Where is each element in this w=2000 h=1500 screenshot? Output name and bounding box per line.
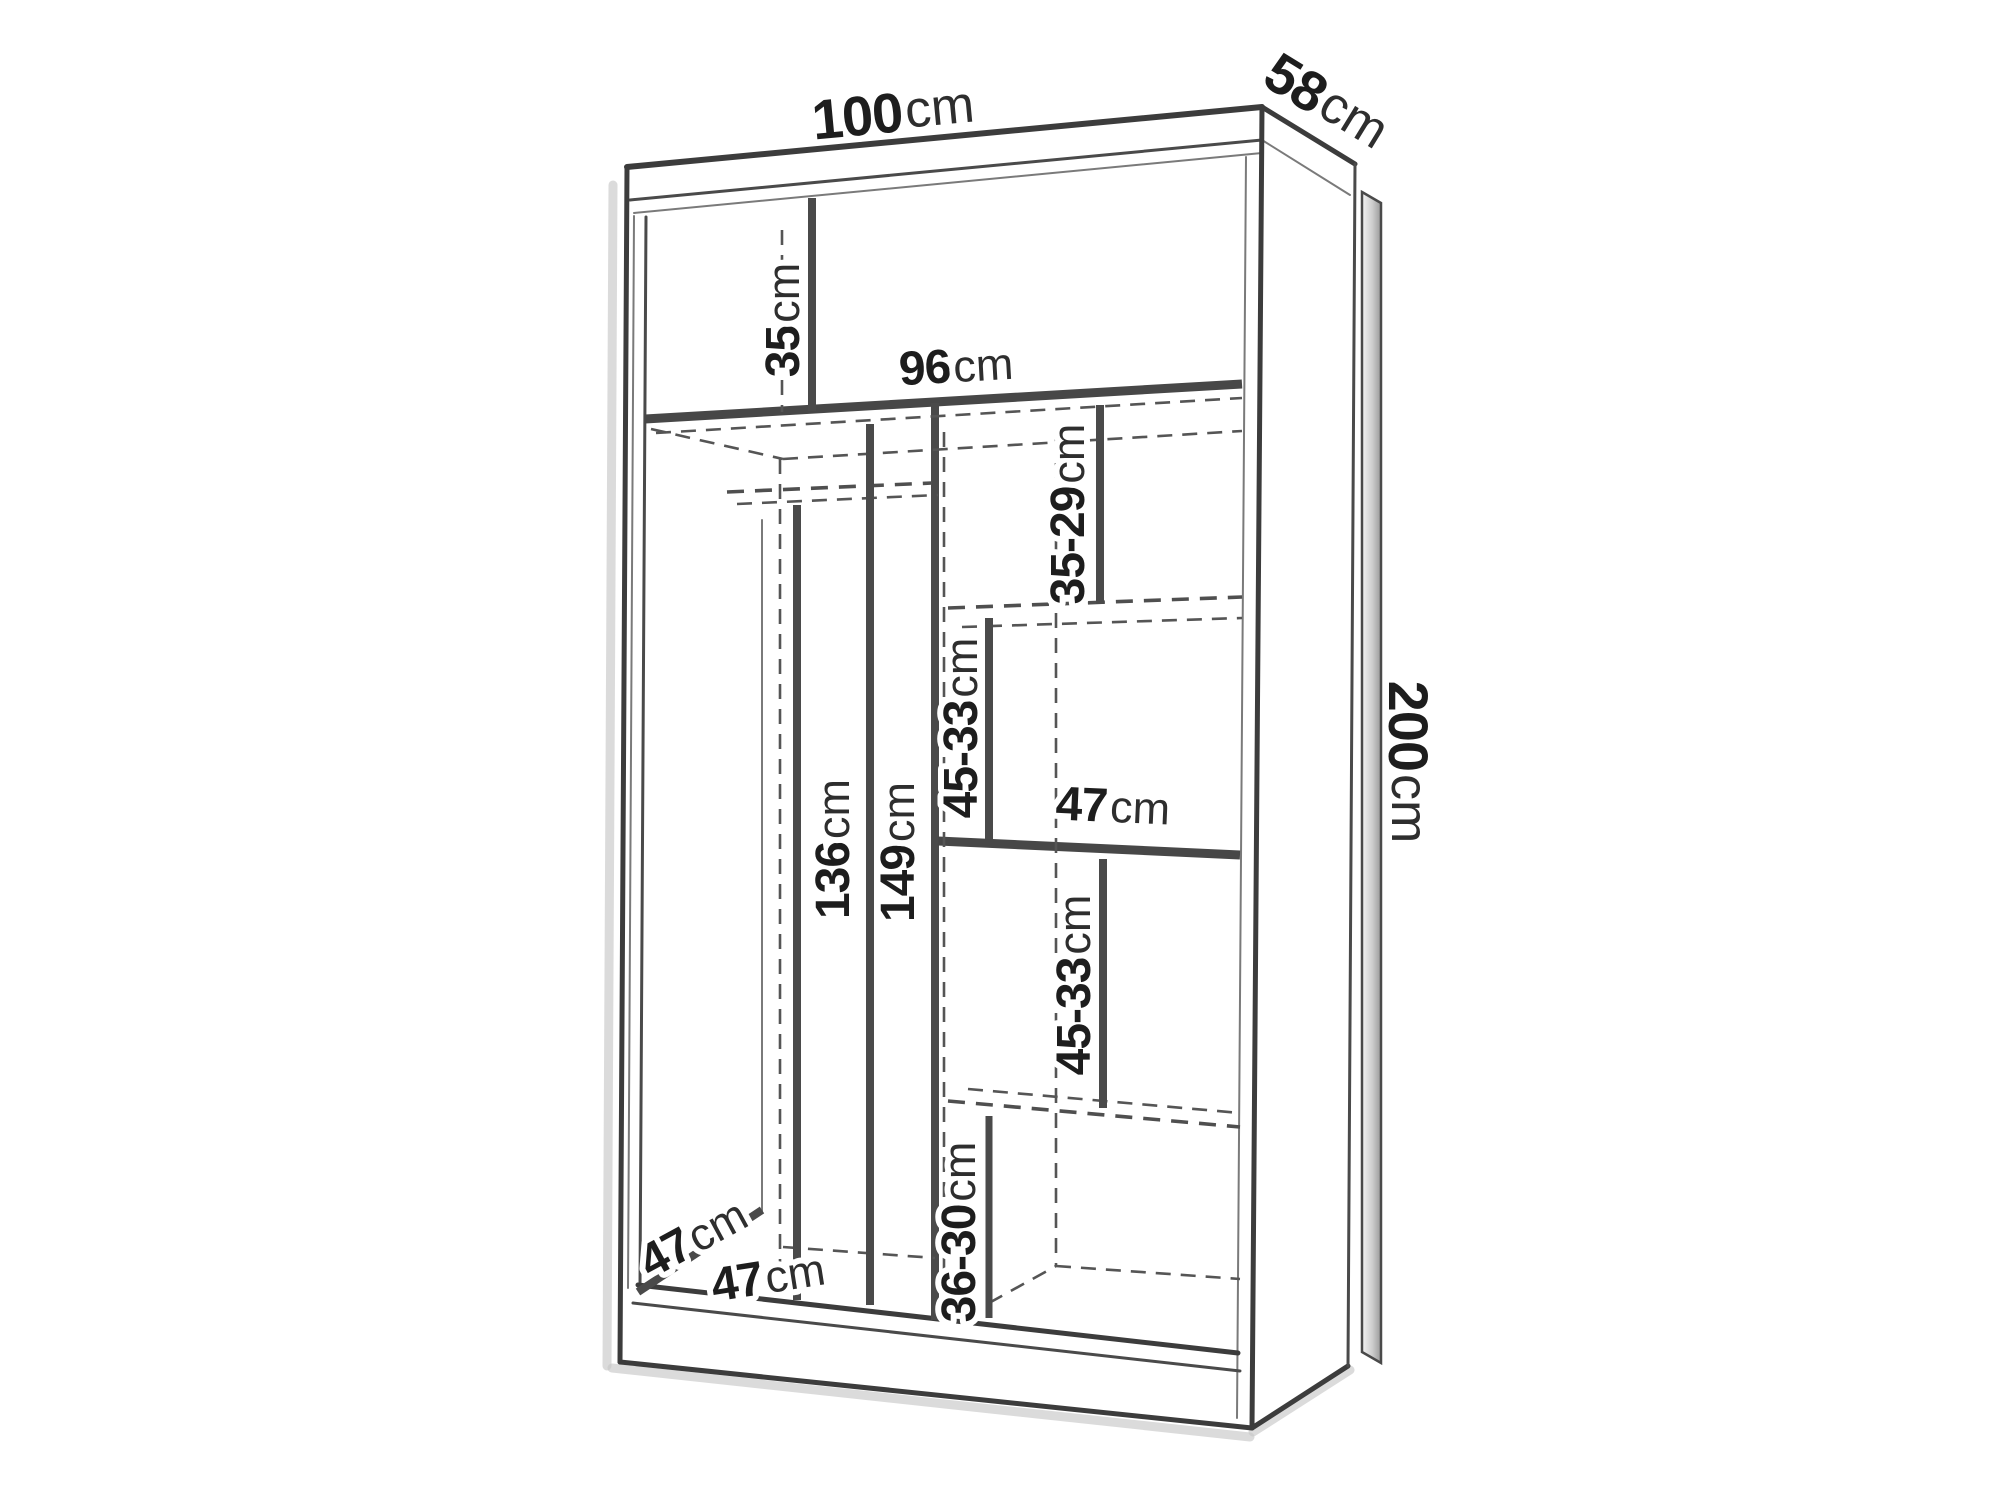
dim-height-label: 200cm [1378,681,1441,844]
wardrobe-dimension-diagram: 100cm 58cm 200cm 35cm 96cm 35-29cm 136cm… [0,0,2000,1500]
diagram-canvas: 100cm 58cm 200cm 35cm 96cm 35-29cm 136cm… [0,0,2000,1500]
dim-upper-right-shelf-label: 35-29cm [1042,424,1095,605]
dim-interior-width-label: 96cm [897,336,1014,395]
dim-bottom-right-shelf-label: 36-30cm [933,1142,986,1323]
dim-rail-height-back-label: 149cm [872,782,925,922]
dim-mid-right-shelf-label: 45-33cm [935,638,988,819]
shadow-left [607,185,613,1366]
dim-right-shelf-width-label: 47cm [1055,777,1172,835]
dim-rail-height-front-label: 136cm [807,779,860,919]
dim-top-section-label: 35cm [757,263,810,377]
side-strip-panel [1362,192,1381,1363]
dim-lower-right-shelf-label: 45-33cm [1048,895,1101,1076]
right-side-face [1252,107,1355,1428]
